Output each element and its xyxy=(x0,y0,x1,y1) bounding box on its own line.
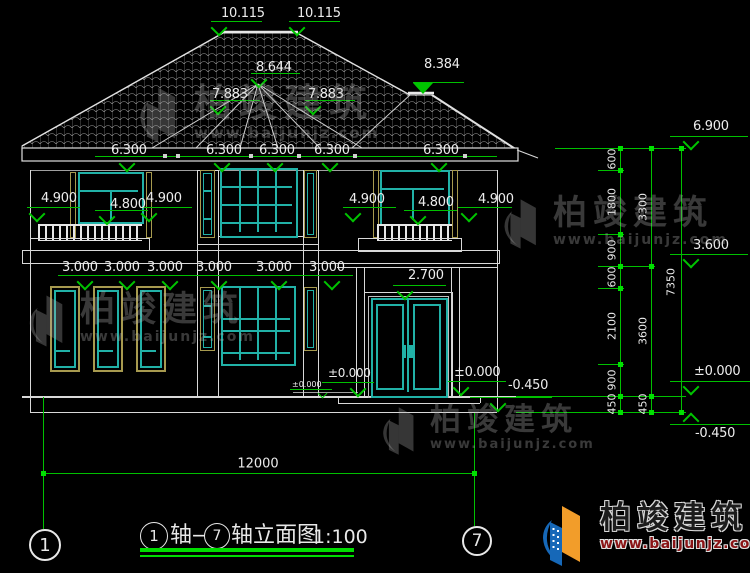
elev-label: 4.900 xyxy=(41,192,77,205)
dim-tick xyxy=(618,362,623,367)
narrow-window xyxy=(203,173,212,235)
dim-tick xyxy=(618,146,623,151)
narrow-window xyxy=(307,290,314,348)
window xyxy=(140,290,162,368)
axis-number: 7 xyxy=(472,531,483,551)
window-rail xyxy=(99,350,113,352)
break-mark xyxy=(463,154,467,158)
elevation-drawing: 10.115 10.115 8.644 7.883 7.883 8.384 6.… xyxy=(0,0,750,573)
dim-line-inner xyxy=(620,148,621,412)
grid-mullion xyxy=(275,288,277,360)
dim-line-outer xyxy=(681,148,682,412)
elev-label: 3.000 xyxy=(196,261,232,274)
grid-rail xyxy=(223,318,290,320)
elev-label: 6.300 xyxy=(259,144,295,157)
ground-line xyxy=(22,396,540,398)
elev-triangle xyxy=(490,396,507,413)
elev-label: 6.300 xyxy=(206,144,242,157)
elev-line xyxy=(670,136,748,137)
elev-label: 8.644 xyxy=(256,61,292,74)
elev-label: 10.115 xyxy=(221,7,265,20)
porch-step-edge xyxy=(338,396,339,403)
elev-label: -0.450 xyxy=(508,379,548,392)
dim-value: 1800 xyxy=(607,188,618,216)
title-scale: 1:100 xyxy=(313,528,368,547)
title-segment: 轴立面图 xyxy=(231,525,319,547)
title-underline-thick xyxy=(140,548,354,552)
elev-label: 3.000 xyxy=(147,261,183,274)
axis-number: 1 xyxy=(39,535,50,556)
elev-line xyxy=(322,382,374,383)
ext-line xyxy=(516,412,686,413)
dim-tick xyxy=(618,168,623,173)
sill-dim-line xyxy=(58,275,353,276)
grid-rail xyxy=(222,222,292,224)
bay-sill-line xyxy=(197,244,318,245)
dim-tick xyxy=(618,286,623,291)
elev-label: 6.300 xyxy=(314,144,350,157)
dim-line-mid xyxy=(651,148,652,412)
elev-label: 3.000 xyxy=(309,261,345,274)
break-mark xyxy=(163,154,167,158)
dim-tick xyxy=(618,264,623,269)
axis-bubble-1: 1 xyxy=(29,529,61,561)
door-handle xyxy=(402,345,406,358)
brand-url: www.baijunjz.com xyxy=(600,535,750,553)
elev-label: 10.115 xyxy=(297,7,341,20)
foundation-left xyxy=(30,396,31,412)
brand-logo-icon xyxy=(542,502,590,568)
dim-tick xyxy=(618,410,623,415)
break-mark xyxy=(249,154,253,158)
title-underline-thin xyxy=(140,555,354,557)
dim-tick xyxy=(618,394,623,399)
fascia-corner xyxy=(517,150,538,158)
dim-tick xyxy=(679,410,684,415)
elev-label: 7.883 xyxy=(308,88,344,101)
brand-logo: 柏竣建筑 www.baijunjz.com xyxy=(542,502,750,568)
window xyxy=(97,290,119,368)
dim-value: 3600 xyxy=(638,317,649,345)
dim-tick xyxy=(618,232,623,237)
dim-tick xyxy=(679,146,684,151)
dim-value: 600 xyxy=(607,267,618,288)
narrow-window-rail xyxy=(203,336,212,338)
break-mark xyxy=(176,154,180,158)
axis-number: 1 xyxy=(149,527,159,545)
grid-window-2f xyxy=(220,168,298,238)
dim-value: 600 xyxy=(607,149,618,170)
dim-value: 3300 xyxy=(638,193,649,221)
axis-line-1 xyxy=(43,397,44,529)
grid-rail xyxy=(223,352,290,354)
window-rail xyxy=(142,350,156,352)
grid-rail xyxy=(222,186,292,188)
elev-label: 8.384 xyxy=(424,58,460,71)
overall-dim-line xyxy=(43,473,474,474)
elev-label: 6.300 xyxy=(111,144,147,157)
dim-tick xyxy=(649,394,654,399)
window xyxy=(54,290,76,368)
narrow-window-rail xyxy=(203,218,212,220)
overall-width-value: 12000 xyxy=(237,458,278,471)
brand-name: 柏竣建筑 xyxy=(600,502,750,535)
elev-triangle xyxy=(324,274,341,291)
dim-tick xyxy=(649,264,654,269)
dim-value: 900 xyxy=(607,240,618,261)
elev-triangle xyxy=(345,206,362,223)
dim-value-total: 7350 xyxy=(666,268,677,296)
watermark-name: 柏竣建筑 xyxy=(430,404,595,437)
elev-line xyxy=(404,210,457,211)
elev-label: 2.700 xyxy=(408,269,444,282)
elev-label: 4.800 xyxy=(418,196,454,209)
watermark-url: www.baijunjz.com xyxy=(430,437,595,453)
elev-triangle xyxy=(29,206,46,223)
window-rail xyxy=(56,350,70,352)
elev-line xyxy=(290,389,332,390)
elev-label: 4.800 xyxy=(110,198,146,211)
elev-label: 3.000 xyxy=(62,261,98,274)
elev-line xyxy=(470,397,552,398)
elev-line xyxy=(670,254,748,255)
elev-label-small: ±0.000 xyxy=(292,381,322,389)
elev-label: 4.900 xyxy=(146,192,182,205)
dim-tick xyxy=(649,146,654,151)
elev-triangle xyxy=(461,206,478,223)
elev-line xyxy=(670,381,750,382)
balcony-slab xyxy=(358,238,462,252)
elev-label: ±0.000 xyxy=(328,367,371,379)
porch-step xyxy=(338,403,480,404)
narrow-window-rail xyxy=(203,190,212,192)
door-leaf-left xyxy=(376,304,404,390)
axis-line-7 xyxy=(474,413,475,526)
elev-label: 3.000 xyxy=(104,261,140,274)
narrow-window xyxy=(307,173,314,235)
door-handle xyxy=(409,345,413,358)
narrow-window xyxy=(203,290,212,348)
elev-label: 3.600 xyxy=(693,239,729,252)
grid-rail xyxy=(222,204,292,206)
elev-label: ±0.000 xyxy=(694,365,740,378)
break-mark xyxy=(353,154,357,158)
grid-mullion xyxy=(239,288,241,360)
balcony-slab xyxy=(30,238,150,251)
break-mark xyxy=(297,154,301,158)
window-transom xyxy=(80,190,138,192)
elev-label: 7.883 xyxy=(212,88,248,101)
axis-number: 7 xyxy=(213,528,222,544)
elev-line xyxy=(670,424,750,425)
elev-label: 4.900 xyxy=(478,193,514,206)
grid-rail xyxy=(223,330,290,332)
elev-label: 6.900 xyxy=(693,120,729,133)
dim-tick xyxy=(649,410,654,415)
dim-value: 450 xyxy=(638,394,649,415)
elev-label: ±0.000 xyxy=(454,366,500,379)
elev-label: 4.900 xyxy=(349,193,385,206)
elev-label: 6.300 xyxy=(423,144,459,157)
grid-mullion xyxy=(257,288,259,360)
elev-triangle-filled xyxy=(413,83,433,94)
dim-tick xyxy=(472,471,477,476)
dim-tick xyxy=(41,471,46,476)
axis-bubble-7: 7 xyxy=(462,526,492,556)
narrow-window-rail xyxy=(203,305,212,307)
title-axis-bubble-1: 1 xyxy=(140,522,168,550)
dim-value: 2100 xyxy=(607,312,618,340)
dim-value: 900 xyxy=(607,370,618,391)
foundation-bottom xyxy=(30,412,497,413)
elev-label: 3.000 xyxy=(256,261,292,274)
elev-label: -0.450 xyxy=(695,427,735,440)
dim-value: 450 xyxy=(607,394,618,415)
left-wall xyxy=(30,170,31,396)
ext-line xyxy=(516,396,686,397)
door-leaf-right xyxy=(413,304,441,390)
title-axis-bubble-7: 7 xyxy=(204,523,230,549)
